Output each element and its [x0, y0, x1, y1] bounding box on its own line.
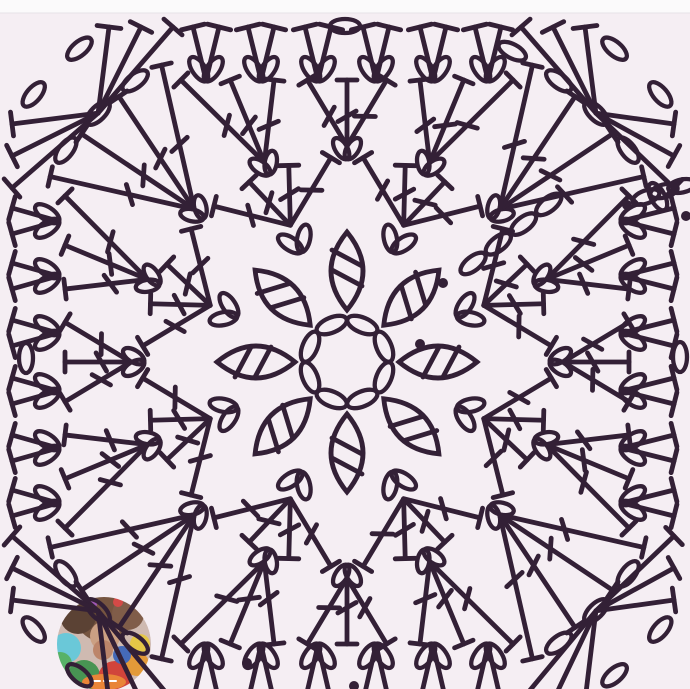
top-strip	[0, 0, 690, 13]
crochet-chart-svg	[0, 0, 690, 689]
crochet-chart-page	[0, 0, 690, 689]
